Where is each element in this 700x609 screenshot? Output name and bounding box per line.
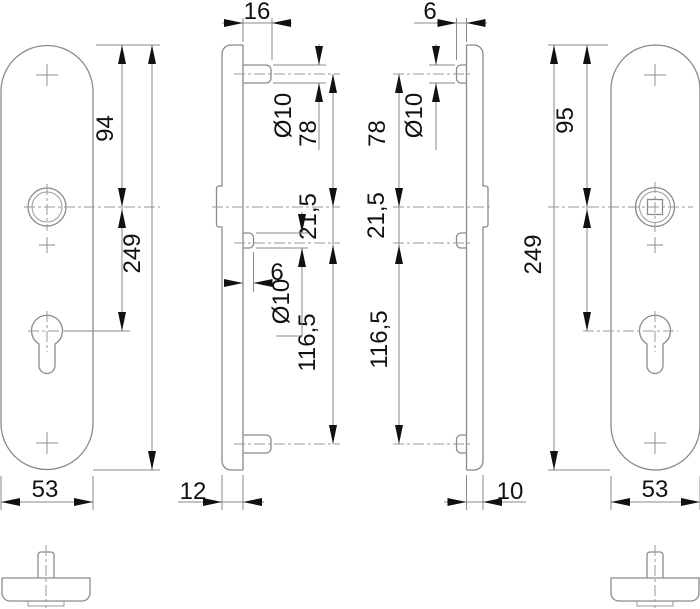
dim-label-78-a: 78 (295, 120, 322, 147)
screw-mark-bottom (644, 432, 666, 454)
dim-label-249-right: 249 (520, 234, 547, 274)
screw-mark-mid (39, 237, 55, 253)
dim-label-dia10-a-top: Ø10 (270, 93, 297, 138)
dim-label-10: 10 (497, 478, 524, 505)
screw-mark-top (644, 64, 666, 86)
dim-label-12: 12 (180, 478, 207, 505)
dim-label-116-5-a: 116,5 (294, 313, 321, 371)
profile-right-dimensions: 6 Ø10 78 21,5 116,5 10 (363, 0, 526, 510)
screw-mark-bottom (36, 432, 58, 454)
dim-label-dia10-b: Ø10 (401, 93, 428, 138)
screw-mark-top (36, 64, 58, 86)
euro-keyhole (640, 315, 671, 373)
screw-mark-mid (647, 237, 663, 253)
dim-label-6-b: 6 (423, 0, 436, 25)
left-plate-outline (1, 46, 93, 470)
profile-b-back-face (467, 45, 489, 470)
dim-label-78-b: 78 (364, 120, 391, 147)
dim-label-21-5-b: 21,5 (363, 192, 390, 239)
dim-label-95: 95 (552, 107, 579, 134)
right-plate-outline (611, 45, 700, 470)
dim-label-16: 16 (244, 0, 271, 25)
euro-keyhole (31, 315, 62, 373)
dim-label-116-5-b: 116,5 (366, 310, 393, 368)
profile-a-front-face (217, 45, 244, 470)
dim-label-53-right: 53 (642, 476, 669, 503)
left-cap-part (2, 545, 90, 608)
profile-a-mid-stud (243, 233, 254, 248)
dim-label-53-left: 53 (32, 476, 59, 503)
left-plate-dimensions: 94 249 53 (1, 45, 160, 510)
technical-drawing-canvas: 94 249 53 16 Ø (0, 0, 700, 609)
profile-left-dimensions: 16 Ø10 78 21,5 116,5 6 Ø10 (178, 0, 337, 510)
dim-label-dia10-a-mid: Ø10 (268, 279, 295, 324)
dim-label-249-left: 249 (119, 233, 146, 273)
right-cap-part (611, 545, 699, 608)
door-plate-dimension-drawing: 94 249 53 16 Ø (0, 0, 700, 609)
profile-b-mid-stud (457, 233, 467, 248)
dim-label-94: 94 (92, 115, 119, 142)
right-plate-dimensions: 249 95 53 (520, 45, 700, 510)
